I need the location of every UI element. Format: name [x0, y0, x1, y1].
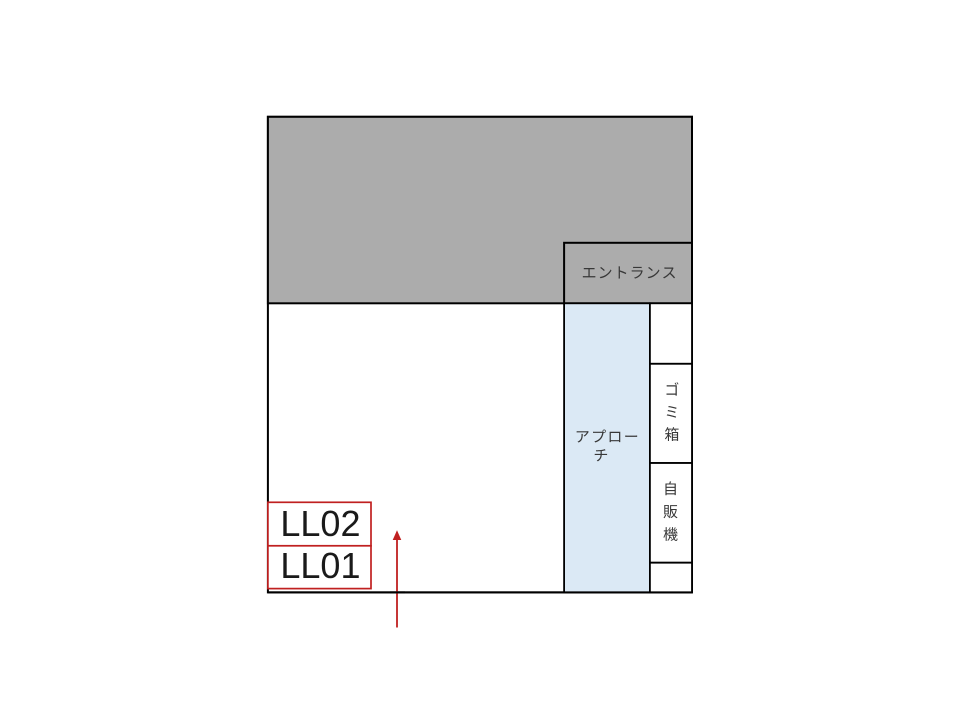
svg-text:LL01: LL01 — [280, 545, 360, 586]
svg-text:LL02: LL02 — [280, 503, 360, 544]
